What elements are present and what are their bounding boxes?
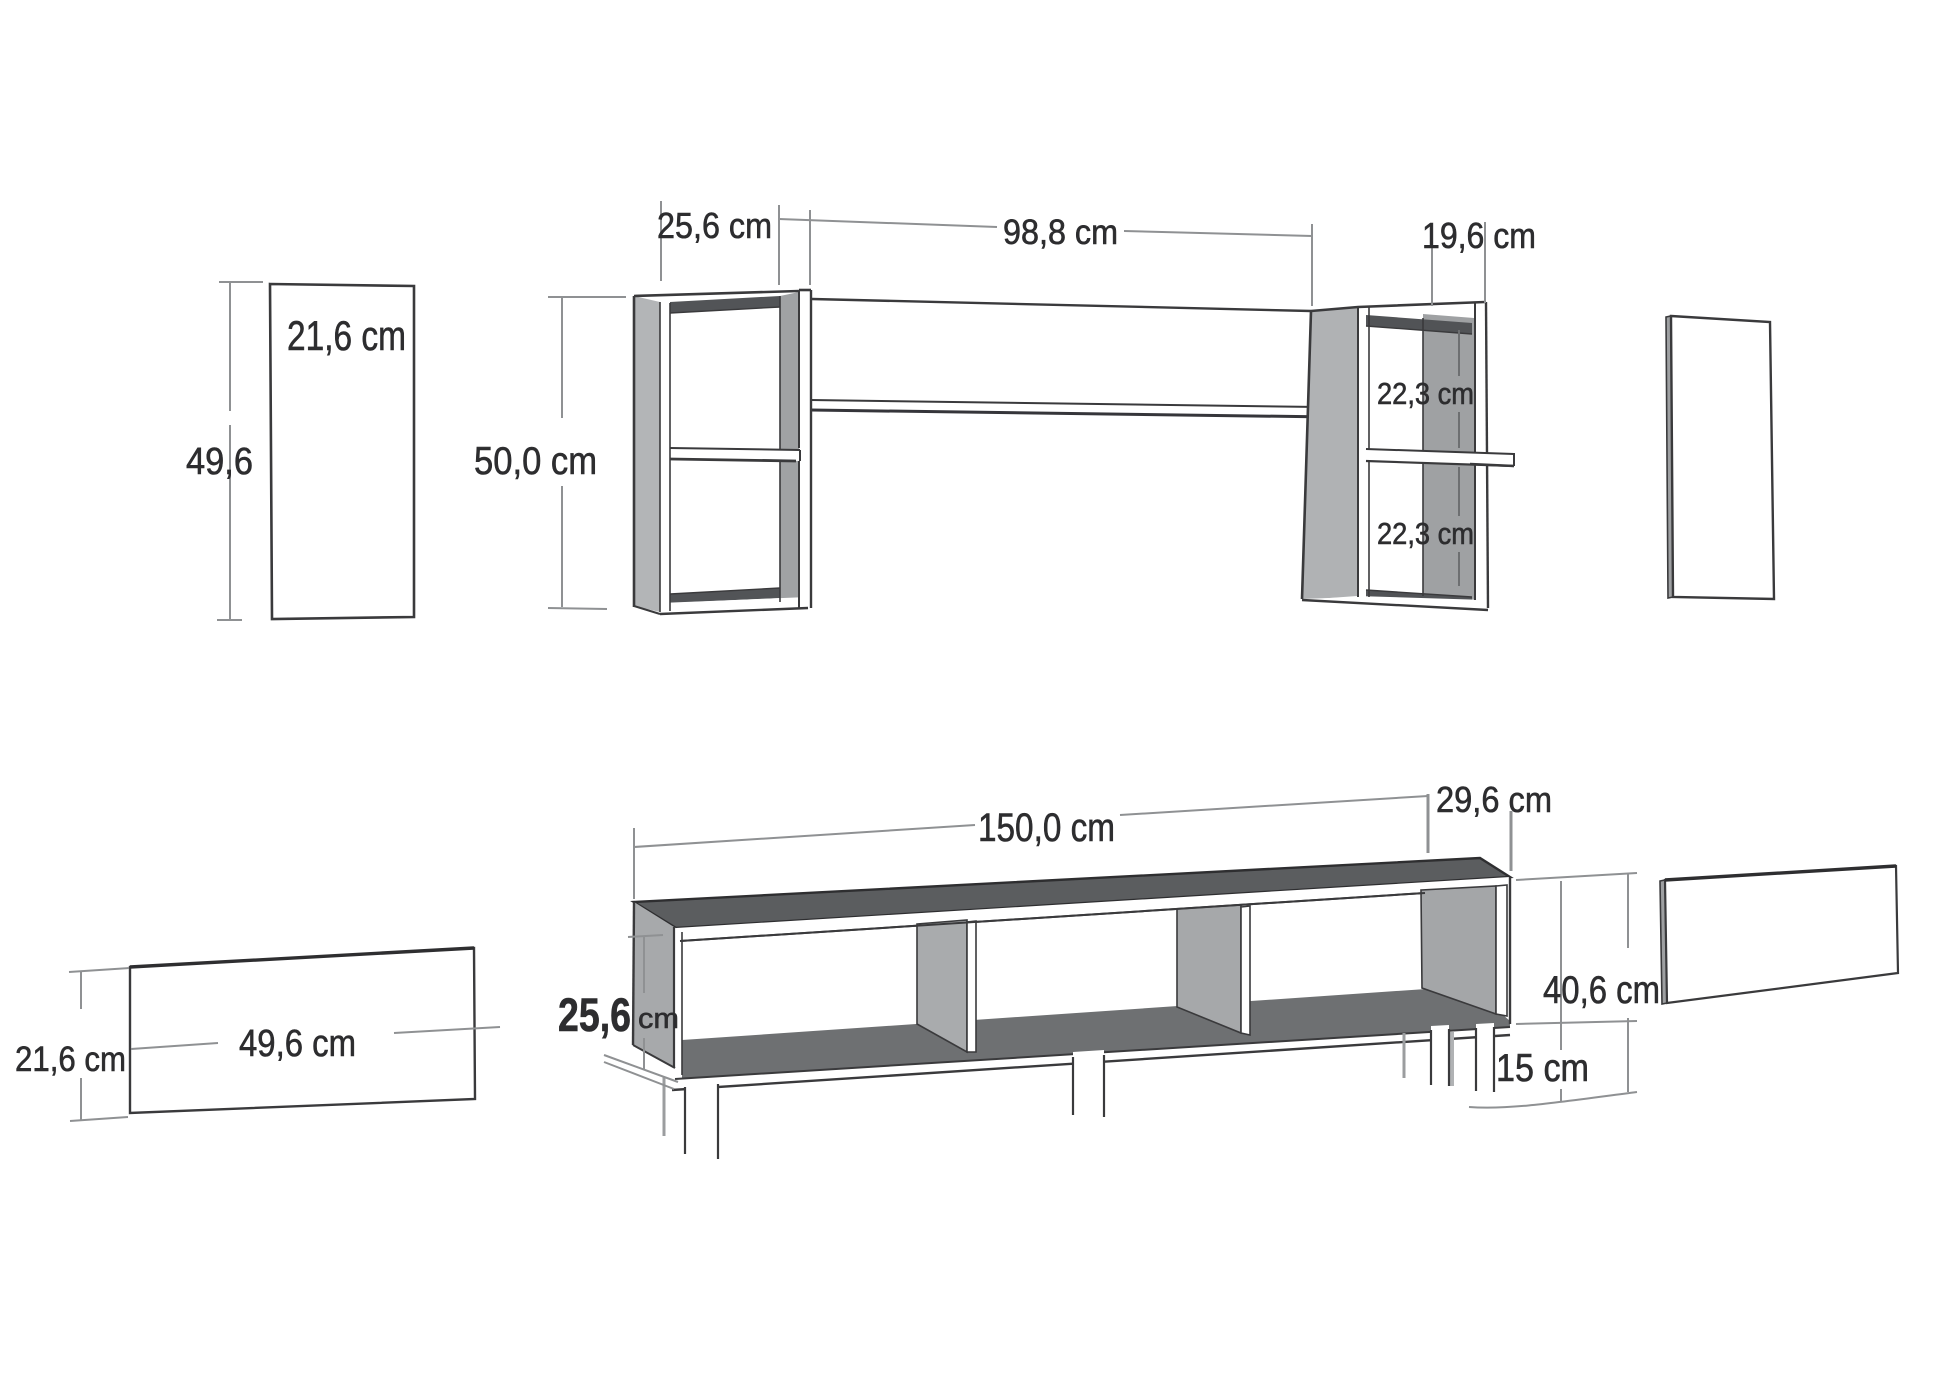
svg-text:98,8 cm: 98,8 cm <box>1003 213 1118 252</box>
svg-text:15 cm: 15 cm <box>1496 1047 1589 1090</box>
svg-text:21,6 cm: 21,6 cm <box>15 1040 126 1079</box>
svg-text:25,6: 25,6 <box>558 988 631 1041</box>
svg-text:50,0 cm: 50,0 cm <box>474 440 597 483</box>
svg-text:29,6 cm: 29,6 cm <box>1436 779 1552 820</box>
svg-text:cm: cm <box>638 1003 679 1035</box>
svg-text:19,6 cm: 19,6 cm <box>1422 215 1536 256</box>
svg-text:150,0 cm: 150,0 cm <box>978 806 1115 850</box>
svg-text:49,6 cm: 49,6 cm <box>239 1023 356 1065</box>
svg-text:21,6 cm: 21,6 cm <box>287 312 406 359</box>
svg-text:40,6 cm: 40,6 cm <box>1543 969 1660 1012</box>
svg-text:22,3 cm: 22,3 cm <box>1377 516 1474 551</box>
svg-text:49,6: 49,6 <box>186 441 253 483</box>
svg-text:22,3 cm: 22,3 cm <box>1377 376 1474 411</box>
svg-text:25,6 cm: 25,6 cm <box>657 205 772 246</box>
